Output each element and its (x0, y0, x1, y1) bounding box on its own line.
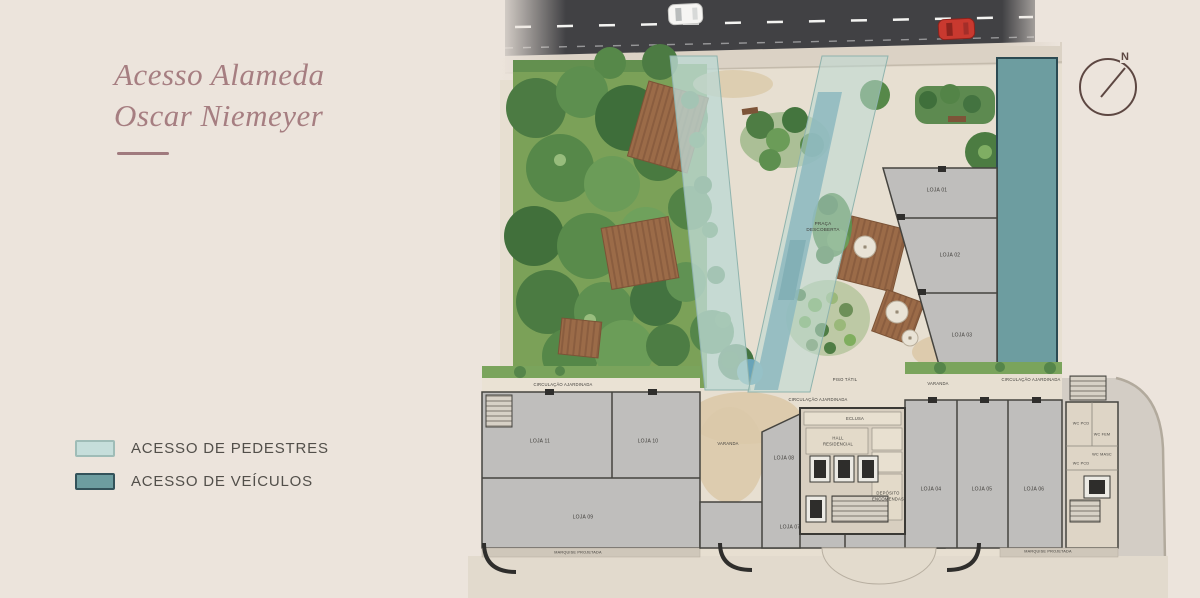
plan-label-5: VARANDA (927, 381, 948, 387)
plan-label-13: LOJA 07 (780, 525, 801, 532)
plan-label-11: LOJA 05 (972, 487, 993, 494)
title-divider (117, 152, 169, 155)
vehicle-access-swatch (75, 473, 115, 490)
page: PRAÇA DESCOBERTAPISO TÁTILCIRCULAÇÃO AJA… (0, 0, 1200, 598)
page-title-line2: Oscar Niemeyer (114, 95, 324, 136)
compass: N (1079, 54, 1141, 116)
plan-label-19: HALL RESIDENCIAL (823, 435, 853, 446)
plan-label-1: PISO TÁTIL (833, 377, 858, 383)
plan-label-26: MARQUISE PROJETADA (1024, 549, 1071, 554)
plan-label-24: WC PCD (1073, 461, 1090, 466)
plan-label-14: LOJA 08 (774, 456, 795, 463)
pedestrian-access-swatch (75, 440, 115, 457)
plan-label-17: LOJA 11 (530, 439, 550, 446)
plan-label-12: LOJA 06 (1024, 487, 1045, 494)
page-title-line1: Acesso Alameda (114, 54, 324, 95)
plan-label-8: LOJA 02 (940, 253, 961, 260)
plan-label-21: WC PCD (1073, 421, 1090, 426)
plan-label-10: LOJA 04 (921, 487, 942, 494)
plan-label-20: DEPÓSITO ENCOMENDAS (872, 490, 904, 501)
legend-item-pedestrian: ACESSO DE PEDESTRES (75, 440, 329, 457)
page-title: Acesso Alameda Oscar Niemeyer (114, 54, 324, 136)
plan-label-22: WC FEM (1094, 432, 1111, 437)
plan-label-0: PRAÇA DESCOBERTA (806, 221, 839, 233)
plan-label-18: ECLUSA (846, 416, 864, 422)
plan-label-23: WC MASC (1092, 452, 1112, 457)
plan-label-3: CIRCULAÇÃO AJARDINADA (788, 397, 847, 403)
legend: ACESSO DE PEDESTRES ACESSO DE VEÍCULOS (75, 440, 329, 506)
legend-item-vehicle: ACESSO DE VEÍCULOS (75, 473, 329, 490)
plan-label-9: LOJA 03 (952, 333, 973, 340)
red-car (938, 18, 975, 40)
plan-label-7: LOJA 01 (927, 188, 948, 195)
plan-label-25: MARQUISE PROJETADA (554, 550, 601, 555)
compass-north-label: N (1120, 51, 1130, 63)
white-car (668, 3, 703, 25)
plan-label-4: CIRCULAÇÃO AJARDINADA (1001, 377, 1060, 383)
pedestrian-access-label: ACESSO DE PEDESTRES (131, 440, 329, 457)
vehicle-access-ramp (997, 58, 1057, 372)
compass-circle-icon (1079, 54, 1141, 116)
plan-label-6: VARANDA (717, 441, 738, 447)
plan-label-2: CIRCULAÇÃO AJARDINADA (533, 382, 592, 388)
plan-label-16: LOJA 10 (638, 439, 659, 446)
plan-label-15: LOJA 09 (573, 515, 594, 522)
vehicle-access-label: ACESSO DE VEÍCULOS (131, 473, 313, 490)
residential-core (800, 408, 905, 534)
